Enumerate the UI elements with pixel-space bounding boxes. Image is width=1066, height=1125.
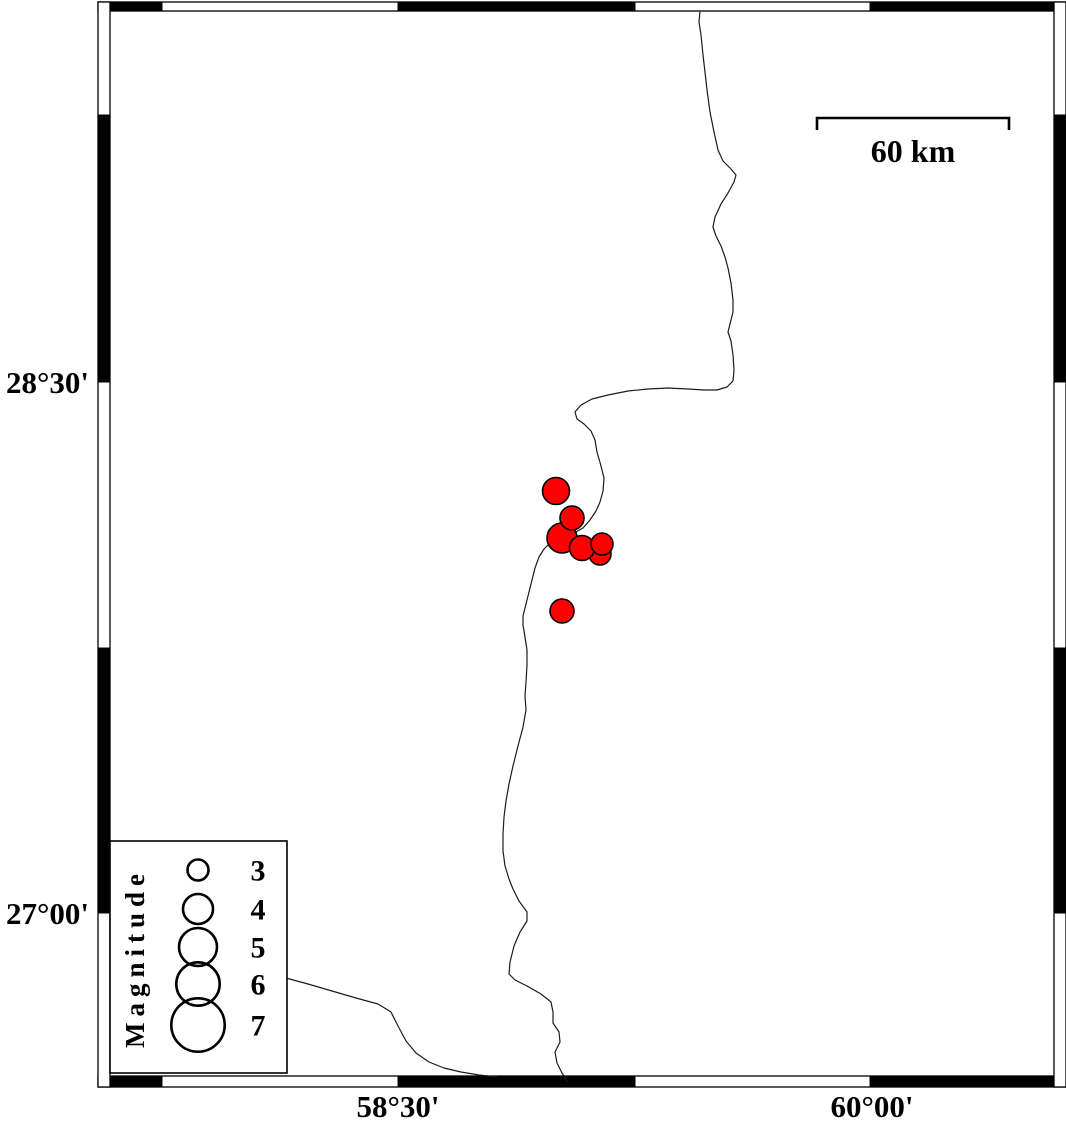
frame-tick-segment-left: [98, 648, 110, 913]
earthquake-marker: [591, 533, 613, 555]
magnitude-legend: Magnitude 34567: [110, 841, 287, 1073]
longitude-label: 58°30': [356, 1089, 439, 1124]
longitude-label: 60°00': [830, 1089, 913, 1124]
frame-tick-segment-top: [398, 2, 635, 11]
legend-magnitude-value: 7: [251, 1010, 266, 1043]
legend-magnitude-value: 4: [251, 894, 266, 927]
map-canvas: 60 km Magnitude 34567 28°30'27°00'58°30'…: [0, 0, 1066, 1125]
legend-magnitude-value: 5: [251, 932, 266, 965]
frame-tick-segment-bottom: [110, 1076, 162, 1087]
seismicity-map-figure: 60 km Magnitude 34567 28°30'27°00'58°30'…: [0, 0, 1066, 1125]
frame-tick-segment-bottom: [870, 1076, 1053, 1087]
legend-title: Magnitude: [120, 868, 150, 1048]
scale-bar-bracket: [817, 118, 1009, 130]
frame-tick-segment-bottom: [398, 1076, 635, 1087]
latitude-label: 27°00': [6, 896, 89, 931]
legend-magnitude-value: 6: [251, 969, 266, 1002]
scale-bar-label: 60 km: [871, 133, 956, 169]
latitude-label: 28°30': [6, 365, 89, 400]
earthquake-markers: [543, 478, 614, 624]
legend-magnitude-value: 3: [251, 855, 266, 888]
frame-tick-segment-right: [1054, 648, 1066, 913]
map-scale-bar: 60 km: [817, 118, 1009, 169]
coastlines: [286, 11, 736, 1081]
frame-tick-segment-top: [870, 2, 1054, 11]
earthquake-marker: [543, 478, 570, 505]
earthquake-marker: [560, 506, 584, 530]
earthquake-marker: [570, 536, 595, 561]
frame-tick-segment-right: [1054, 115, 1066, 382]
earthquake-marker: [550, 599, 574, 623]
coastline-branch: [286, 978, 497, 1077]
coastline-main: [503, 11, 736, 1081]
frame-tick-segment-top: [110, 2, 162, 11]
frame-tick-segment-left: [98, 115, 110, 382]
